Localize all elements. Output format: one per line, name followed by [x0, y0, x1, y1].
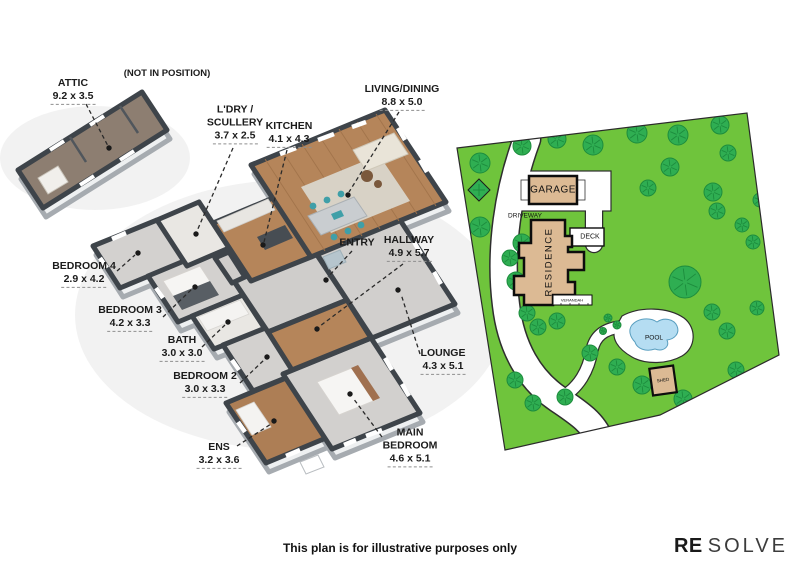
tree-icon — [582, 345, 598, 361]
deck-label: DECK — [580, 234, 599, 241]
tree-icon — [720, 145, 736, 161]
tree-icon — [633, 376, 651, 394]
tree-icon — [470, 153, 490, 173]
tree-icon — [470, 217, 490, 237]
tree-icon — [746, 235, 760, 249]
room-label-ens: ENS 3.2 x 3.6 — [197, 441, 242, 469]
room-label-main-bedroom: MAIN BEDROOM 4.6 x 5.1 — [383, 426, 438, 467]
room-name: KITCHEN — [266, 120, 313, 133]
tree-icon — [750, 301, 764, 315]
tree-icon — [600, 328, 607, 335]
tree-icon — [613, 321, 621, 329]
room-label-bedroom2: BEDROOM 2 3.0 x 3.3 — [173, 370, 237, 398]
room-name: BATH — [160, 334, 205, 347]
room-dims: 8.8 x 5.0 — [380, 96, 425, 111]
tree-icon — [525, 395, 541, 411]
tree-icon — [583, 135, 603, 155]
room-label-bedroom4: BEDROOM 4 2.9 x 4.2 — [52, 260, 116, 288]
residence-label: RESIDENCE — [544, 228, 555, 297]
verandah-label: VERANDAH — [561, 298, 583, 303]
room-name: BEDROOM 2 — [173, 370, 237, 383]
room-dims: 4.1 x 4.3 — [267, 133, 312, 148]
tree-icon — [530, 319, 546, 335]
driveway-label: DRIVEWAY — [508, 213, 542, 220]
tree-icon — [557, 389, 573, 405]
coffee-table — [361, 170, 373, 182]
tree-icon — [735, 218, 749, 232]
tree-icon — [519, 305, 535, 321]
tree-icon — [704, 304, 720, 320]
brand-logo-solve: SOLVE — [708, 535, 788, 558]
tree-icon — [704, 183, 722, 201]
tree-icon — [549, 313, 565, 329]
room-dims: 4.3 x 5.1 — [421, 360, 466, 375]
room-name: MAIN — [383, 426, 438, 439]
tree-icon — [502, 250, 518, 266]
brand-logo-re: RE — [674, 535, 703, 558]
tree-icon — [719, 323, 735, 339]
tree-icon — [661, 158, 679, 176]
room-name: BEDROOM — [383, 439, 438, 452]
room-label-living-dining: LIVING/DINING 8.8 x 5.0 — [365, 83, 440, 111]
room-label-lounge: LOUNGE 4.3 x 5.1 — [421, 347, 466, 375]
tree-icon — [753, 193, 767, 207]
room-label-hallway: HALLWAY 4.9 x 5.7 — [384, 234, 434, 262]
room-label-attic: ATTIC 9.2 x 3.5 — [51, 77, 96, 105]
tree-icon — [709, 203, 725, 219]
room-dims: 3.2 x 3.6 — [197, 454, 242, 469]
tree-icon — [604, 314, 612, 322]
room-label-bath: BATH 3.0 x 3.0 — [160, 334, 205, 362]
pool-label: POOL — [645, 335, 663, 342]
brand-logo: RE SOLVE — [674, 535, 788, 558]
room-name: LIVING/DINING — [365, 83, 440, 96]
room-dims: 4.2 x 3.3 — [108, 317, 153, 332]
room-name: ENS — [197, 441, 242, 454]
tree-icon — [548, 130, 566, 148]
room-dims: 3.7 x 2.5 — [213, 130, 258, 145]
tree-icon — [507, 372, 523, 388]
room-dims: 2.9 x 4.2 — [62, 273, 107, 288]
tree-icon — [669, 266, 701, 298]
room-name: SCULLERY — [207, 116, 263, 129]
room-name: BEDROOM 4 — [52, 260, 116, 273]
room-dims: 3.0 x 3.3 — [183, 383, 228, 398]
room-dims: 3.0 x 3.0 — [160, 347, 205, 362]
room-name: L'DRY / — [207, 103, 263, 116]
room-name: ENTRY — [339, 236, 374, 249]
tree-icon — [640, 180, 656, 196]
tree-icon — [711, 116, 729, 134]
room-name: BEDROOM 3 — [98, 304, 162, 317]
room-name: LOUNGE — [421, 347, 466, 360]
room-label-laundry: L'DRY / SCULLERY 3.7 x 2.5 — [207, 103, 263, 144]
disclaimer-text: This plan is for illustrative purposes o… — [283, 541, 517, 555]
coffee-table — [374, 180, 382, 188]
tree-icon — [728, 362, 744, 378]
room-label-bedroom3: BEDROOM 3 4.2 x 3.3 — [98, 304, 162, 332]
position-note: (NOT IN POSITION) — [124, 68, 211, 80]
room-label-kitchen: KITCHEN 4.1 x 4.3 — [266, 120, 313, 148]
tree-icon — [609, 359, 625, 375]
siteplan — [457, 113, 779, 450]
room-name: HALLWAY — [384, 234, 434, 247]
room-dims: 9.2 x 3.5 — [51, 90, 96, 105]
garage-label: GARAGE — [530, 185, 576, 196]
room-label-entry: ENTRY — [339, 236, 374, 249]
room-dims: 4.6 x 5.1 — [388, 453, 433, 468]
page: ATTIC 9.2 x 3.5 (NOT IN POSITION) L'DRY … — [0, 0, 800, 567]
tree-icon — [668, 125, 688, 145]
room-name: ATTIC — [51, 77, 96, 90]
room-dims: 4.9 x 5.7 — [387, 247, 432, 262]
